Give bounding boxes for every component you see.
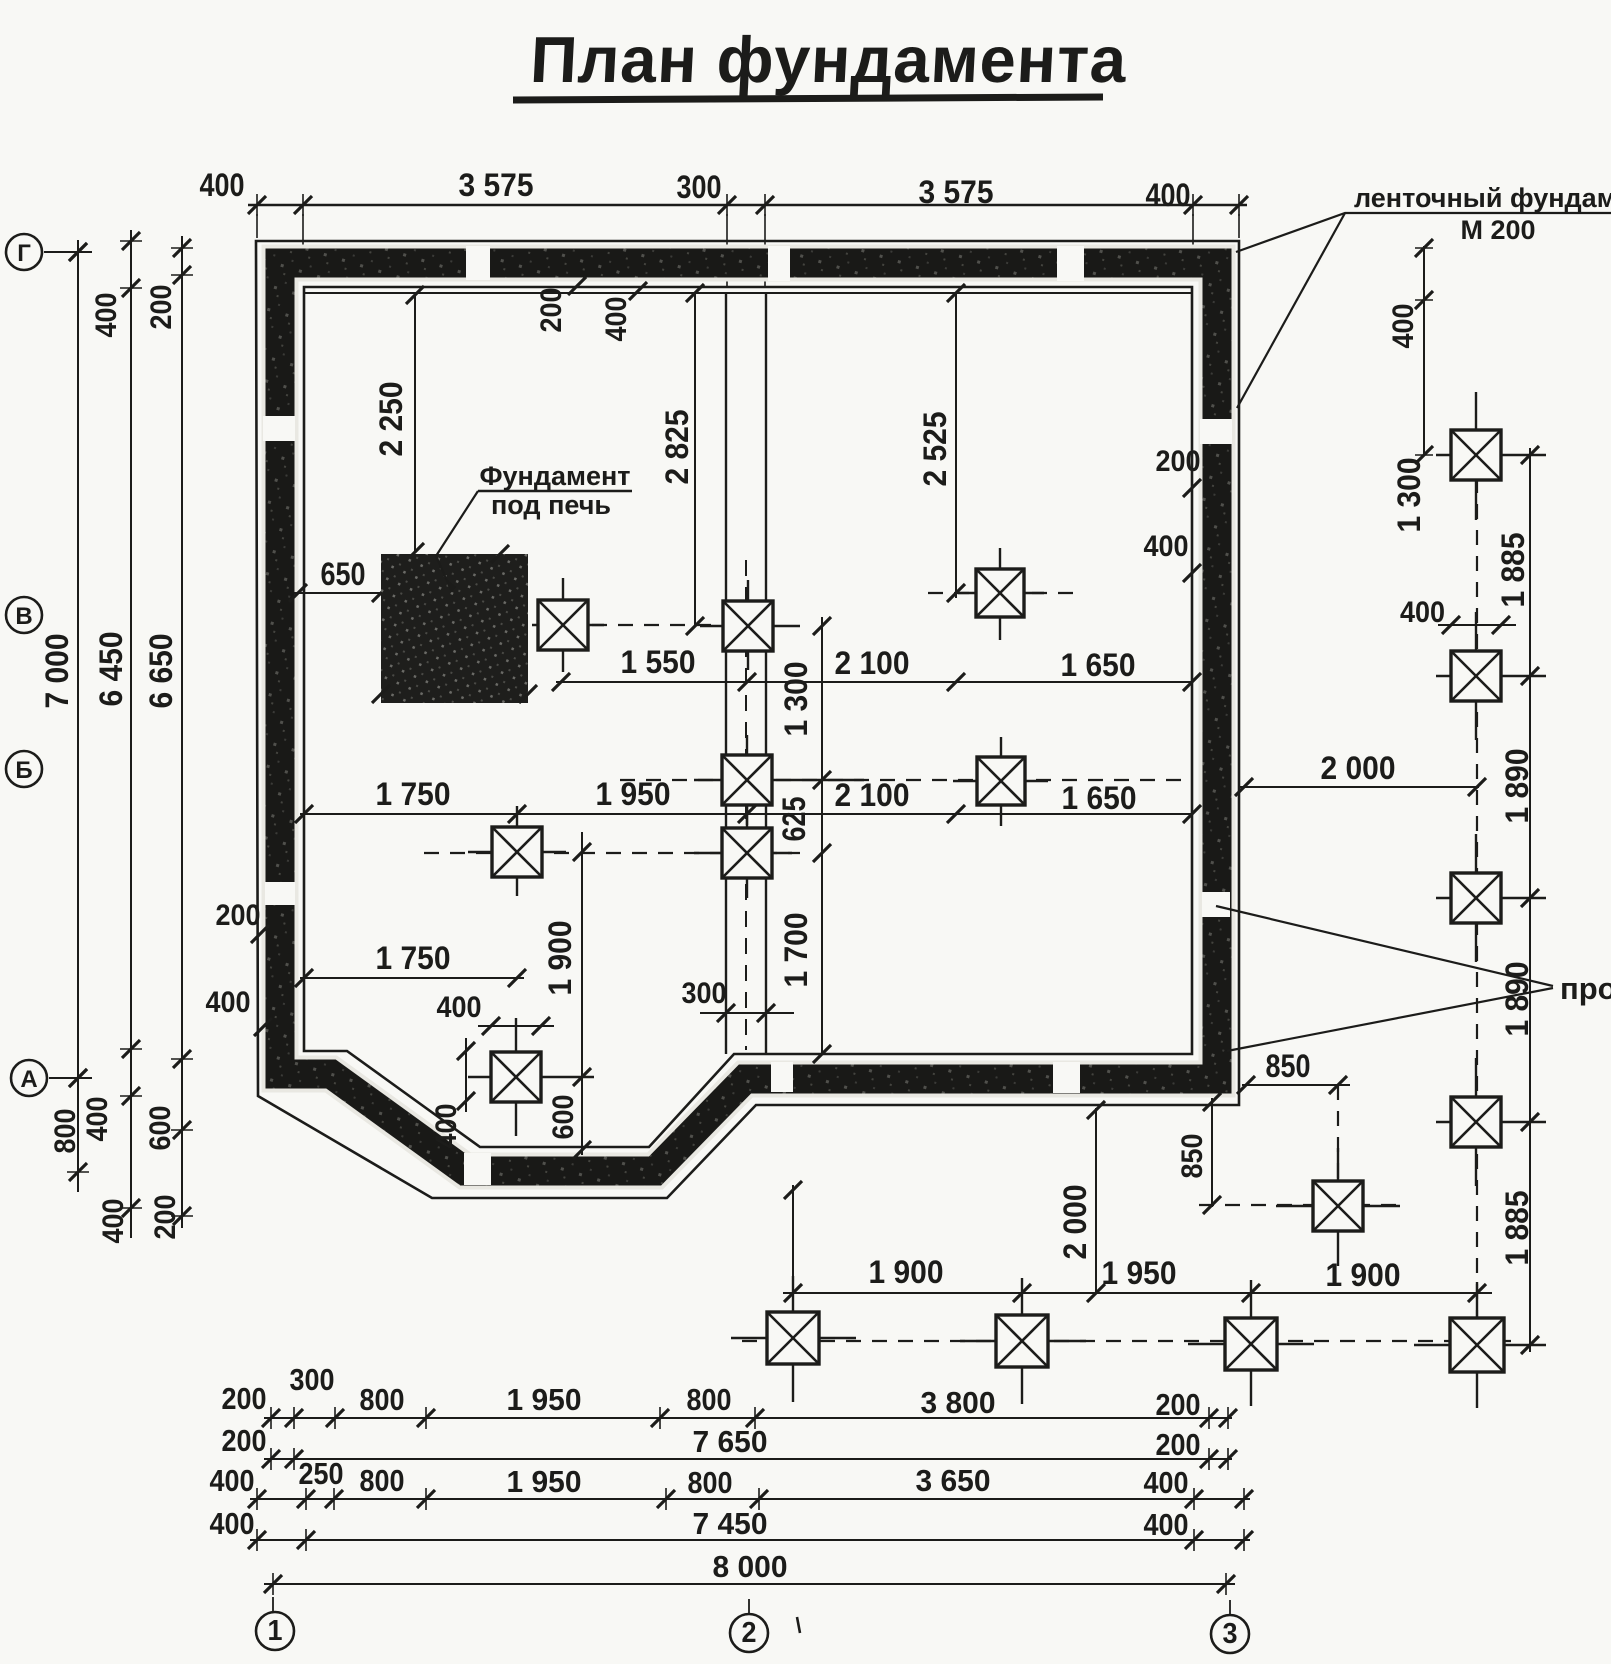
svg-text:1 700: 1 700 — [778, 913, 814, 988]
svg-text:625: 625 — [776, 797, 812, 842]
svg-text:1 900: 1 900 — [869, 1254, 944, 1290]
svg-text:М 200: М 200 — [1460, 215, 1535, 245]
svg-text:Б: Б — [15, 757, 32, 784]
svg-text:300: 300 — [290, 1362, 335, 1397]
svg-text:800: 800 — [49, 1109, 82, 1154]
svg-text:200: 200 — [216, 899, 261, 932]
svg-text:400: 400 — [97, 1199, 130, 1244]
svg-text:1 890: 1 890 — [1499, 962, 1535, 1037]
svg-text:1 950: 1 950 — [1102, 1255, 1177, 1291]
svg-text:1: 1 — [268, 1615, 283, 1647]
svg-text:1 950: 1 950 — [507, 1382, 582, 1417]
svg-text:8 000: 8 000 — [713, 1549, 788, 1584]
svg-text:В: В — [15, 603, 32, 630]
svg-text:400: 400 — [210, 1506, 255, 1541]
svg-text:под печь: под печь — [491, 490, 611, 520]
svg-text:800: 800 — [360, 1382, 405, 1417]
svg-text:3: 3 — [1223, 1618, 1238, 1650]
svg-text:Фундамент: Фундамент — [479, 461, 630, 491]
svg-text:200: 200 — [222, 1423, 267, 1458]
svg-text:800: 800 — [687, 1382, 732, 1417]
svg-text:200: 200 — [145, 285, 178, 330]
svg-text:1 890: 1 890 — [1499, 749, 1535, 824]
svg-text:1 300: 1 300 — [778, 662, 814, 737]
svg-text:400: 400 — [430, 1104, 463, 1149]
svg-text:650: 650 — [321, 556, 366, 592]
svg-text:1 650: 1 650 — [1061, 647, 1136, 683]
svg-text:1 885: 1 885 — [1495, 533, 1531, 608]
svg-text:400: 400 — [1144, 1465, 1189, 1500]
svg-text:3 650: 3 650 — [916, 1463, 991, 1498]
svg-text:2 250: 2 250 — [373, 382, 409, 457]
svg-text:600: 600 — [547, 1095, 580, 1140]
svg-text:3 575: 3 575 — [459, 167, 534, 203]
svg-text:400: 400 — [200, 167, 245, 203]
svg-text:850: 850 — [1266, 1048, 1311, 1084]
svg-text:400: 400 — [1400, 596, 1445, 629]
svg-text:200: 200 — [149, 1195, 182, 1240]
svg-text:400: 400 — [1146, 177, 1191, 213]
svg-text:2 000: 2 000 — [1321, 750, 1396, 786]
svg-text:800: 800 — [360, 1463, 405, 1498]
svg-text:200: 200 — [1156, 445, 1201, 478]
svg-text:600: 600 — [144, 1106, 177, 1151]
svg-text:200: 200 — [222, 1381, 267, 1416]
svg-text:200: 200 — [535, 288, 568, 333]
svg-text:3 800: 3 800 — [921, 1385, 996, 1420]
svg-text:400: 400 — [206, 986, 251, 1019]
svg-text:6 450: 6 450 — [93, 632, 129, 707]
svg-text:1 950: 1 950 — [507, 1464, 582, 1499]
svg-text:1 900: 1 900 — [1326, 1257, 1401, 1293]
svg-text:200: 200 — [1156, 1387, 1201, 1422]
svg-text:6 650: 6 650 — [143, 634, 179, 709]
svg-text:1 650: 1 650 — [1062, 780, 1137, 816]
svg-text:400: 400 — [437, 991, 482, 1024]
svg-text:1 550: 1 550 — [621, 644, 696, 680]
svg-text:300: 300 — [682, 977, 727, 1010]
svg-text:1 750: 1 750 — [376, 940, 451, 976]
svg-text:7 000: 7 000 — [39, 634, 75, 709]
svg-text:200: 200 — [1156, 1427, 1201, 1462]
svg-text:800: 800 — [688, 1465, 733, 1500]
svg-text:2 100: 2 100 — [835, 777, 910, 813]
svg-text:ленточный фундамент: ленточный фундамент — [1354, 183, 1611, 213]
svg-text:2 825: 2 825 — [659, 410, 695, 485]
svg-text:2: 2 — [742, 1617, 757, 1649]
svg-text:7 450: 7 450 — [693, 1506, 768, 1541]
svg-text:400: 400 — [90, 293, 123, 338]
svg-text:прод: прод — [1560, 971, 1611, 1006]
svg-text:400: 400 — [210, 1463, 255, 1498]
svg-text:400: 400 — [1144, 1507, 1189, 1542]
svg-text:План фундамента: План фундамента — [529, 23, 1130, 96]
svg-text:400: 400 — [1144, 530, 1189, 563]
svg-text:1 885: 1 885 — [1499, 1191, 1535, 1266]
svg-text:400: 400 — [81, 1097, 114, 1142]
svg-text:Г: Г — [17, 240, 31, 267]
svg-text:1 750: 1 750 — [376, 776, 451, 812]
svg-text:1 900: 1 900 — [542, 921, 578, 996]
svg-text:7 650: 7 650 — [693, 1424, 768, 1459]
svg-text:1 950: 1 950 — [596, 776, 671, 812]
svg-text:2 525: 2 525 — [917, 412, 953, 487]
svg-text:2 100: 2 100 — [835, 645, 910, 681]
svg-text:400: 400 — [1387, 304, 1420, 349]
svg-text:2 000: 2 000 — [1057, 1185, 1093, 1260]
svg-text:1 300: 1 300 — [1391, 458, 1427, 533]
svg-text:300: 300 — [677, 169, 722, 205]
svg-text:3 575: 3 575 — [919, 174, 994, 210]
svg-text:850: 850 — [1176, 1134, 1209, 1179]
svg-text:400: 400 — [600, 297, 633, 342]
svg-text:А: А — [20, 1066, 37, 1093]
svg-text:250: 250 — [299, 1456, 344, 1491]
